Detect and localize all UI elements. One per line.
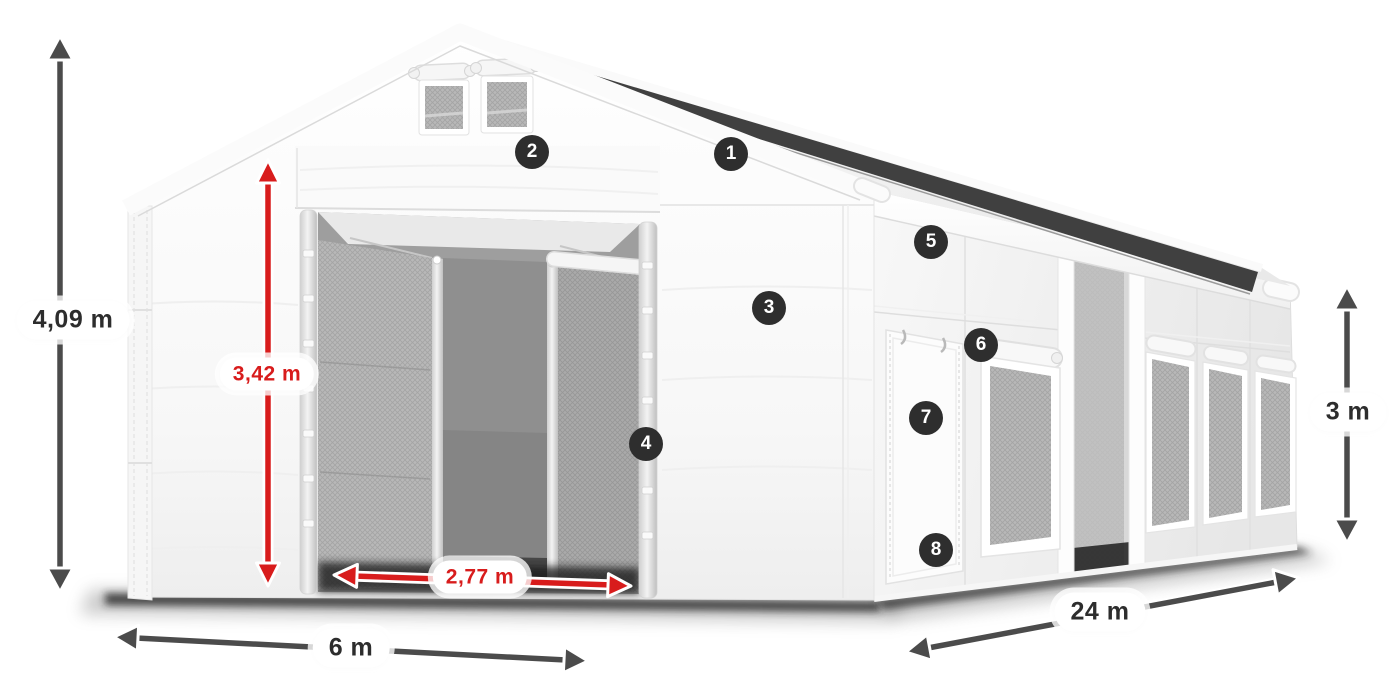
callout-number: 6 xyxy=(976,334,987,356)
callout-2: 2 xyxy=(515,135,549,169)
callout-5: 5 xyxy=(914,225,948,259)
middle-entrance xyxy=(1058,232,1145,578)
valance-band xyxy=(295,146,660,212)
dimension-label-side-wall-height: 3 m xyxy=(1310,393,1387,432)
callout-number: 1 xyxy=(726,143,737,165)
dimension-label-total-height: 4,09 m xyxy=(17,301,130,340)
callout-8: 8 xyxy=(919,533,953,567)
callout-number: 8 xyxy=(931,539,942,561)
dimension-label-front-width: 6 m xyxy=(313,629,390,668)
callout-4: 4 xyxy=(629,427,663,461)
rear-window-1 xyxy=(1146,343,1195,533)
dimension-label-entrance-height: 3,42 m xyxy=(220,358,314,391)
rear-window-2 xyxy=(1203,353,1248,525)
dimension-label-entrance-width: 2,77 m xyxy=(433,561,527,594)
rear-window-3 xyxy=(1255,362,1296,517)
entrance-right-doorpost xyxy=(639,222,657,598)
entrance-left-doorpost xyxy=(300,210,317,594)
side-mesh-window xyxy=(980,343,1063,558)
callout-1: 1 xyxy=(714,137,748,171)
callout-number: 4 xyxy=(641,433,652,455)
callout-number: 2 xyxy=(527,141,538,163)
callout-number: 5 xyxy=(926,231,937,253)
tent-illustration xyxy=(0,0,1400,700)
callout-6: 6 xyxy=(964,328,998,362)
dimension-label-side-length: 24 m xyxy=(1055,593,1146,632)
tent-dimension-diagram: 4,09 m 3,42 m 2,77 m 6 m 24 m 3 m 1 2 3 … xyxy=(0,0,1400,700)
corner-trim-left xyxy=(128,206,152,600)
interior-partition xyxy=(558,262,640,592)
callout-7: 7 xyxy=(909,401,943,435)
inner-door-opening xyxy=(443,258,547,588)
entrance-opening xyxy=(318,212,640,594)
callout-number: 3 xyxy=(764,297,775,319)
callout-number: 7 xyxy=(921,407,932,429)
vent-window-left xyxy=(409,66,476,136)
interior-left-wall xyxy=(318,240,432,590)
vent-window-right xyxy=(471,61,542,134)
callout-3: 3 xyxy=(752,291,786,325)
